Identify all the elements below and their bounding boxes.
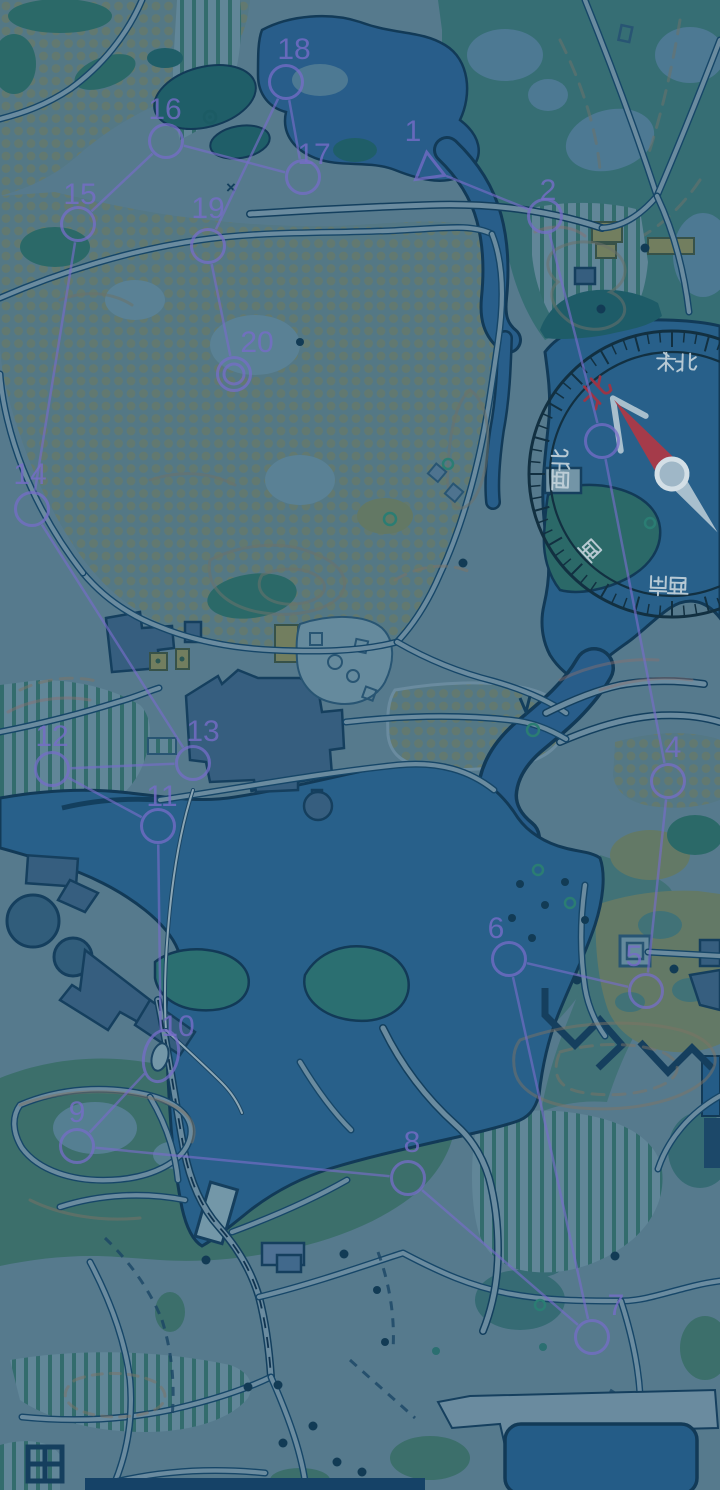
- course-control-number: 15: [63, 178, 96, 211]
- course-control-number: 8: [404, 1126, 421, 1159]
- course-control-number: 20: [240, 326, 273, 359]
- course-control-number: 4: [665, 731, 682, 764]
- course-control-number: 18: [277, 33, 310, 66]
- course-control-number: 10: [161, 1010, 194, 1043]
- course-control-number: 13: [186, 715, 219, 748]
- map-canvas[interactable]: × 124567891011121314151617181920: [0, 0, 720, 1490]
- swimming-pool: [505, 1424, 697, 1490]
- course-control-number: 9: [69, 1096, 86, 1129]
- course-control-number: 1: [405, 115, 422, 148]
- course-control-number: 2: [540, 174, 557, 207]
- course-control-number: 16: [148, 93, 181, 126]
- course-control-number: 12: [35, 720, 68, 753]
- course-control-number: 17: [297, 138, 330, 171]
- course-control-number: 7: [608, 1289, 625, 1322]
- orienteering-map: × 124567891011121314151617181920: [0, 0, 720, 1490]
- course-control-number: 11: [146, 780, 177, 813]
- course-control-number: 14: [13, 458, 46, 491]
- course-control-number: 5: [626, 940, 643, 973]
- course-control-number: 19: [191, 192, 224, 225]
- course-control-number: 6: [488, 912, 505, 945]
